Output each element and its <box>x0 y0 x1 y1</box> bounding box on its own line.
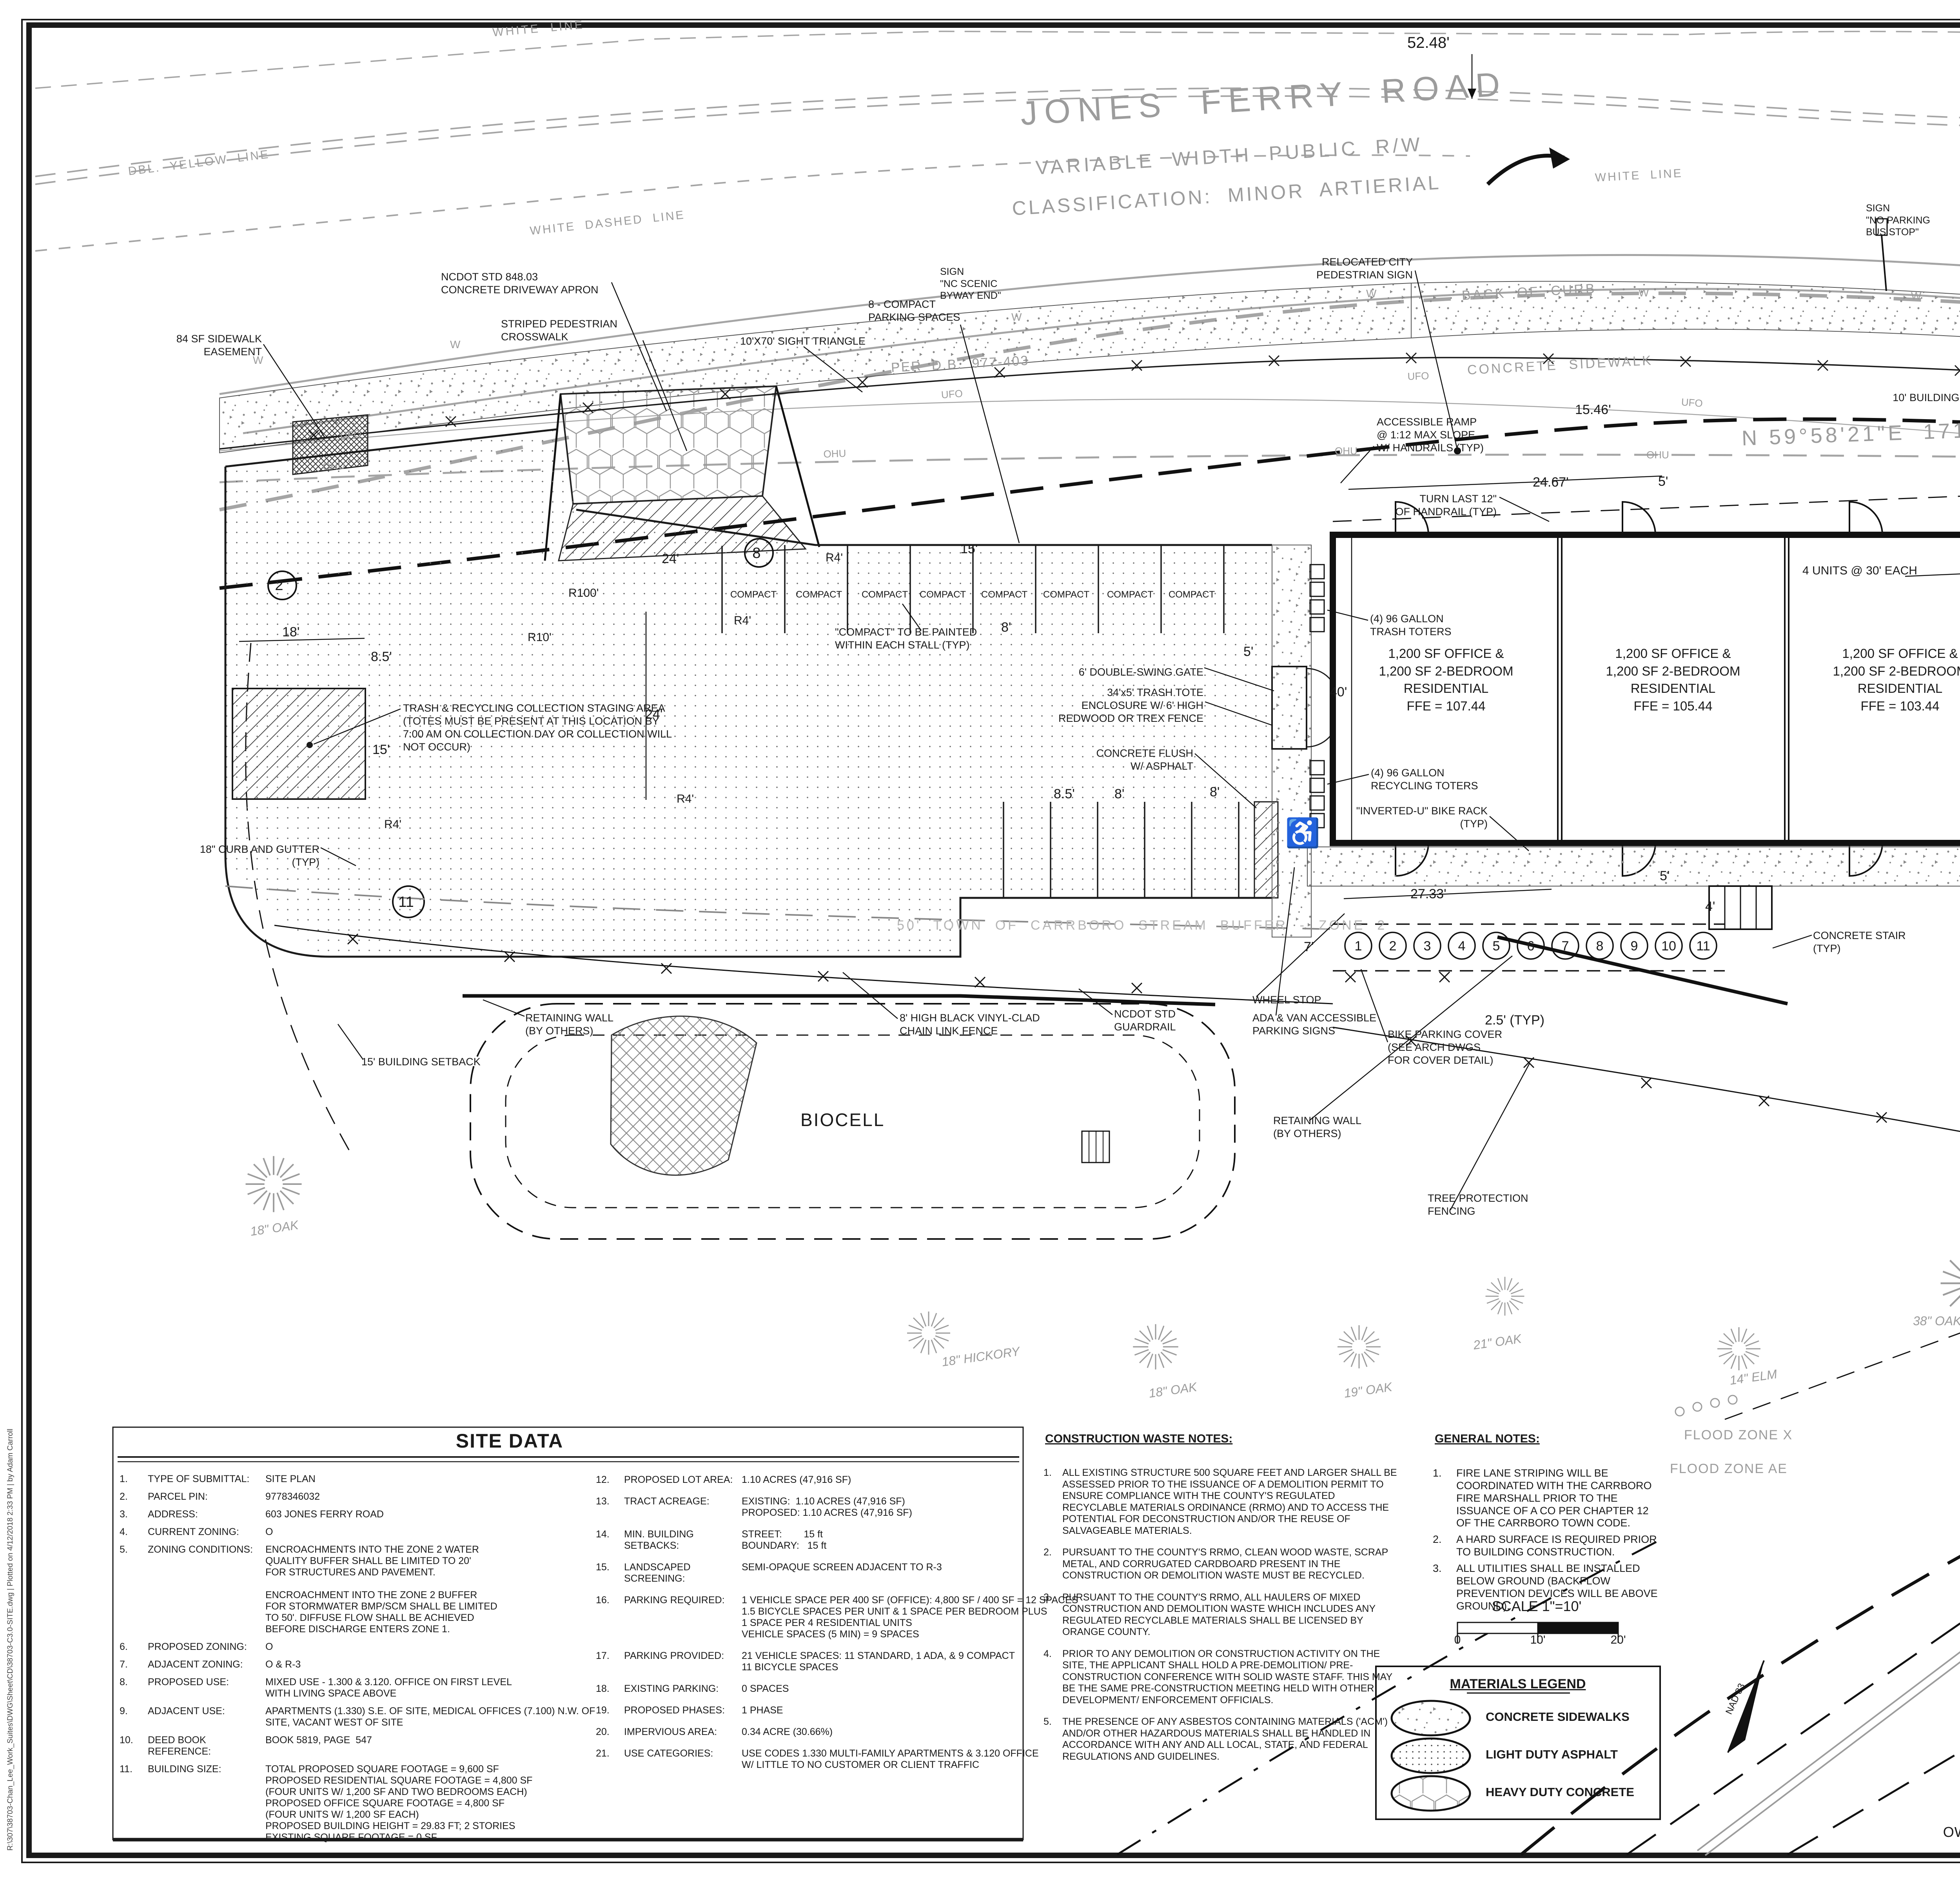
note-number: 2. <box>1044 1547 1062 1582</box>
note-number: 4. <box>1044 1648 1062 1706</box>
bike-10: 10 <box>1661 938 1676 954</box>
compact-1: COMPACT <box>730 589 777 600</box>
note-text: ALL UTILITIES SHALL BE INSTALLED BELOW G… <box>1456 1562 1660 1612</box>
dim-2733: 27.33' <box>1410 886 1446 902</box>
lbl-concrete-stair: CONCRETE STAIR (TYP) <box>1813 929 1906 955</box>
site-data-value: 0.34 ACRE (30.66%) <box>742 1726 1058 1738</box>
bike-4: 4 <box>1458 938 1466 954</box>
site-data-value: 1 PHASE <box>742 1705 1058 1716</box>
site-data-label: PROPOSED LOT AREA: <box>624 1474 742 1486</box>
note-text: ALL EXISTING STRUCTURE 500 SQUARE FEET A… <box>1062 1467 1398 1537</box>
dim-24-aisle: 24' <box>645 707 662 723</box>
gn-title: GENERAL NOTES: <box>1435 1432 1540 1446</box>
w-6: W <box>1911 289 1921 303</box>
lbl-inverted-u: "INVERTED-U" BIKE RACK (TYP) <box>1356 805 1488 830</box>
dim-1546: 15.46' <box>1575 402 1611 418</box>
bike-1: 1 <box>1355 938 1362 954</box>
lbl-recycling-toters: (4) 96 GALLON RECYCLING TOTERS <box>1371 767 1478 792</box>
lbl-biocell: BIOCELL <box>800 1109 885 1131</box>
ufo-3: UFO <box>1407 370 1429 383</box>
7.: 7. ADJACENT ZONING: O & R-3 <box>120 1659 584 1670</box>
site-data-label: LANDSCAPED SCREENING: <box>624 1562 742 1584</box>
site-data-number: 17. <box>596 1650 624 1673</box>
w-3: W <box>1011 311 1022 324</box>
compact-7: COMPACT <box>1107 589 1153 600</box>
5.: 5. THE PRESENCE OF ANY ASBESTOS CONTAINI… <box>1044 1716 1398 1762</box>
dim-7-bike: 7' <box>1304 939 1314 955</box>
site-data-value: 603 JONES FERRY ROAD <box>265 1509 584 1520</box>
lbl-curb-gutter: 18" CURB AND GUTTER (TYP) <box>200 843 319 869</box>
13.: 13. TRACT ACREAGE: EXISTING: 1.10 ACRES … <box>596 1496 1058 1519</box>
ohu-2: OHU <box>823 447 846 461</box>
lbl-chain-link: 8' HIGH BLACK VINYL-CLAD CHAIN LINK FENC… <box>900 1012 1040 1037</box>
lbl-stream-buffer: 50' TOWN OF CARRBORO STREAM BUFFER - ZON… <box>897 917 1387 934</box>
16.: 16. PARKING REQUIRED: 1 VEHICLE SPACE PE… <box>596 1595 1058 1640</box>
17.: 17. PARKING PROVIDED: 21 VEHICLE SPACES:… <box>596 1650 1058 1673</box>
dim-40: 40' <box>1330 684 1347 700</box>
site-data-number: 2. <box>120 1491 148 1502</box>
site-data-right-column: 12. PROPOSED LOT AREA: 1.10 ACRES (47,91… <box>596 1474 1058 1781</box>
sign-scenic-byway: SIGN "NC SCENIC BYWAY END" <box>940 266 1001 302</box>
3.: 3. ADDRESS: 603 JONES FERRY ROAD <box>120 1509 584 1520</box>
dim-18: 18' <box>282 624 299 640</box>
1.: 1. TYPE OF SUBMITTAL: SITE PLAN <box>120 1473 584 1485</box>
unit-2: 1,200 SF OFFICE & 1,200 SF 2-BEDROOM RES… <box>1606 645 1740 715</box>
ml-item-concrete: CONCRETE SIDEWALKS <box>1486 1709 1630 1724</box>
note-number: 2. <box>1433 1533 1456 1559</box>
site-data-label: ZONING CONDITIONS: <box>148 1544 265 1635</box>
r4-b: R4' <box>677 792 694 807</box>
site-data-label: CURRENT ZONING: <box>148 1526 265 1538</box>
site-data-value: MIXED USE - 1.300 & 3.120. OFFICE ON FIR… <box>265 1677 584 1699</box>
site-plan-sheet: JONES FERRY ROADVARIABLE WIDTH PUBLIC R/… <box>0 0 1960 1882</box>
site-data-label: IMPERVIOUS AREA: <box>624 1726 742 1738</box>
construction-waste-notes: 1. ALL EXISTING STRUCTURE 500 SQUARE FEE… <box>1044 1467 1398 1773</box>
site-data-number: 7. <box>120 1659 148 1670</box>
site-data-value: USE CODES 1.330 MULTI-FAMILY APARTMENTS … <box>742 1748 1058 1771</box>
ml-item-heavy: HEAVY DUTY CONCRETE <box>1486 1785 1634 1800</box>
15.: 15. LANDSCAPED SCREENING: SEMI-OPAQUE SC… <box>596 1562 1058 1584</box>
5.: 5. ZONING CONDITIONS: ENCROACHMENTS INTO… <box>120 1544 584 1635</box>
1.: 1. ALL EXISTING STRUCTURE 500 SQUARE FEE… <box>1044 1467 1398 1537</box>
compact-3: COMPACT <box>862 589 908 600</box>
site-data-number: 5. <box>120 1544 148 1635</box>
site-data-value: BOOK 5819, PAGE 547 <box>265 1735 584 1757</box>
site-data-value: 1 VEHICLE SPACE PER 400 SF (OFFICE): 4,8… <box>742 1595 1078 1640</box>
site-data-number: 4. <box>120 1526 148 1538</box>
6.: 6. PROPOSED ZONING: O <box>120 1641 584 1653</box>
compact-8: COMPACT <box>1169 589 1215 600</box>
sign-bus-stop: SIGN "NO PARKING BUS STOP" <box>1866 202 1930 238</box>
note-text: A HARD SURFACE IS REQUIRED PRIOR TO BUIL… <box>1456 1533 1660 1559</box>
site-data-number: 15. <box>596 1562 624 1584</box>
lbl-compact-note: "COMPACT" TO BE PAINTED WITHIN EACH STAL… <box>835 626 977 652</box>
scale-tick-0: 0 <box>1454 1633 1461 1648</box>
w-1: W <box>253 354 263 367</box>
9.: 9. ADJACENT USE: APARTMENTS (1.330) S.E.… <box>120 1706 584 1728</box>
dim-85-b: 8.5' <box>1054 786 1075 802</box>
r10: R10' <box>528 630 552 645</box>
note-number: 3. <box>1044 1592 1062 1638</box>
lbl-10ft-setback: 10' BUILDING SETBACK <box>1893 391 1960 404</box>
ohu-3: OHU <box>1335 445 1357 458</box>
lbl-accessible-ramp: ACCESSIBLE RAMP @ 1:12 MAX SLOPE W/ HAND… <box>1377 416 1484 454</box>
lbl-retaining-wall-west: RETAINING WALL (BY OTHERS) <box>525 1012 613 1037</box>
scale-tick-10: 10' <box>1530 1633 1545 1648</box>
lbl-turn-handrail: TURN LAST 12" OF HANDRAIL (TYP) <box>1395 492 1497 518</box>
dim-8-c: 8' <box>1210 784 1220 800</box>
ufo-2: UFO <box>941 387 963 401</box>
site-data-value: SITE PLAN <box>265 1473 584 1485</box>
site-data-label: USE CATEGORIES: <box>624 1748 742 1771</box>
site-data-value: 1.10 ACRES (47,916 SF) <box>742 1474 1058 1486</box>
note-text: PRIOR TO ANY DEMOLITION OR CONSTRUCTION … <box>1062 1648 1398 1706</box>
site-data-value: 0 SPACES <box>742 1683 1058 1695</box>
site-data-number: 6. <box>120 1641 148 1653</box>
site-data-number: 19. <box>596 1705 624 1716</box>
dim-25-typ: 2.5' (TYP) <box>1485 1012 1544 1028</box>
site-data-number: 13. <box>596 1496 624 1519</box>
r4-a: R4' <box>734 614 751 628</box>
tree-38oak: 38" OAK <box>1913 1313 1960 1329</box>
lbl-trash-staging: TRASH & RECYCLING COLLECTION STAGING ARE… <box>403 702 672 754</box>
dim-8-stall: 8' <box>1001 619 1011 636</box>
site-data-value: TOTAL PROPOSED SQUARE FOOTAGE = 9,600 SF… <box>265 1764 584 1843</box>
lbl-15ft-setback-west: 15' BUILDING SETBACK <box>361 1055 481 1068</box>
ufo-4: UFO <box>1681 396 1703 410</box>
lbl-gate: 6' DOUBLE-SWING GATE <box>1079 666 1203 679</box>
cwn-title: CONSTRUCTION WASTE NOTES: <box>1045 1432 1232 1446</box>
dim-2467: 24.67' <box>1533 474 1569 490</box>
r4-c: R4' <box>384 817 401 832</box>
site-data-title: SITE DATA <box>456 1429 563 1453</box>
dim-15-stall: 15' <box>960 541 978 557</box>
ohu-1: OHU <box>322 460 345 473</box>
lbl-sidewalk-easement: 84 SF SIDEWALK EASEMENT <box>176 332 262 358</box>
bike-6: 6 <box>1527 938 1535 954</box>
note-number: 1. <box>1044 1467 1062 1537</box>
18.: 18. EXISTING PARKING: 0 SPACES <box>596 1683 1058 1695</box>
site-data-value: STREET: 15 ft BOUNDARY: 15 ft <box>742 1529 1058 1551</box>
unit-1: 1,200 SF OFFICE & 1,200 SF 2-BEDROOM RES… <box>1379 645 1514 715</box>
site-data-number: 3. <box>120 1509 148 1520</box>
ml-item-asphalt: LIGHT DUTY ASPHALT <box>1486 1747 1618 1762</box>
site-data-label: ADJACENT ZONING: <box>148 1659 265 1670</box>
3.: 3. ALL UTILITIES SHALL BE INSTALLED BELO… <box>1433 1562 1660 1612</box>
site-data-number: 10. <box>120 1735 148 1757</box>
site-data-number: 1. <box>120 1473 148 1485</box>
site-data-number: 12. <box>596 1474 624 1486</box>
site-data-label: PROPOSED PHASES: <box>624 1705 742 1716</box>
site-data-label: DEED BOOK REFERENCE: <box>148 1735 265 1757</box>
site-data-value: EXISTING: 1.10 ACRES (47,916 SF) PROPOSE… <box>742 1496 1058 1519</box>
circle-8: 8 <box>752 544 760 562</box>
ohu-4: OHU <box>1646 449 1669 461</box>
site-data-number: 21. <box>596 1748 624 1771</box>
2.: 2. PURSUANT TO THE COUNTY'S RRMO, CLEAN … <box>1044 1547 1398 1582</box>
site-data-value: SEMI-OPAQUE SCREEN ADJACENT TO R-3 <box>742 1562 1058 1584</box>
site-data-value: 21 VEHICLE SPACES: 11 STANDARD, 1 ADA, &… <box>742 1650 1058 1673</box>
site-data-value: O & R-3 <box>265 1659 584 1670</box>
bike-7: 7 <box>1562 938 1569 954</box>
bike-8: 8 <box>1596 938 1604 954</box>
file-path-note: R:\307\38703-Chan_Lee_Work_Suites\DWG\Sh… <box>6 949 15 1851</box>
dim-15-stage: 15' <box>372 742 390 758</box>
lbl-bike-cover: BIKE PARKING COVER (SEE ARCH DWGS FOR CO… <box>1388 1028 1502 1067</box>
note-text: THE PRESENCE OF ANY ASBESTOS CONTAINING … <box>1062 1716 1398 1762</box>
2.: 2. A HARD SURFACE IS REQUIRED PRIOR TO B… <box>1433 1533 1660 1559</box>
dim-5-door: 5' <box>1658 474 1668 490</box>
bike-3: 3 <box>1424 938 1431 954</box>
1.: 1. FIRE LANE STRIPING WILL BE COORDINATE… <box>1433 1467 1660 1530</box>
site-data-value: ENCROACHMENTS INTO THE ZONE 2 WATER QUAL… <box>265 1544 584 1635</box>
general-notes: 1. FIRE LANE STRIPING WILL BE COORDINATE… <box>1433 1467 1660 1616</box>
site-data-value: O <box>265 1526 584 1538</box>
bike-11: 11 <box>1696 938 1710 954</box>
ada-symbol: ♿ <box>1285 816 1320 851</box>
note-number: 1. <box>1433 1467 1456 1530</box>
site-data-label: TRACT ACREAGE: <box>624 1496 742 1519</box>
note-text: PURSUANT TO THE COUNTY'S RRMO, ALL HAULE… <box>1062 1592 1398 1638</box>
4.: 4. CURRENT ZONING: O <box>120 1526 584 1538</box>
lbl-trash-toters: (4) 96 GALLON TRASH TOTERS <box>1370 612 1452 638</box>
14.: 14. MIN. BUILDING SETBACKS: STREET: 15 f… <box>596 1529 1058 1551</box>
ml-title: MATERIALS LEGEND <box>1450 1676 1586 1692</box>
bike-9: 9 <box>1631 938 1638 954</box>
lbl-guardrail: NCDOT STD GUARDRAIL <box>1114 1008 1176 1034</box>
site-data-label: EXISTING PARKING: <box>624 1683 742 1695</box>
lbl-tote-enclosure: 34'x5' TRASH TOTE ENCLOSURE W/ 6' HIGH R… <box>1058 686 1203 725</box>
compact-6: COMPACT <box>1043 589 1089 600</box>
site-data-label: ADJACENT USE: <box>148 1706 265 1728</box>
dim-85-stage: 8.5' <box>371 649 392 665</box>
bike-2: 2 <box>1389 938 1397 954</box>
compact-4: COMPACT <box>920 589 966 600</box>
site-data-number: 11. <box>120 1764 148 1843</box>
8.: 8. PROPOSED USE: MIXED USE - 1.300 & 3.1… <box>120 1677 584 1699</box>
2.: 2. PARCEL PIN: 9778346032 <box>120 1491 584 1502</box>
site-data-value: O <box>265 1641 584 1653</box>
site-data-label: PARKING PROVIDED: <box>624 1650 742 1673</box>
10.: 10. DEED BOOK REFERENCE: BOOK 5819, PAGE… <box>120 1735 584 1757</box>
owner-information: OWNER INFORMATION: FRANCIS CHAN; 101 HAR… <box>1943 1824 1960 1840</box>
dim-5-stair: 5' <box>1660 868 1670 884</box>
site-data-label: PROPOSED ZONING: <box>148 1641 265 1653</box>
ufo-1: UFO <box>339 427 362 442</box>
11.: 11. BUILDING SIZE: TOTAL PROPOSED SQUARE… <box>120 1764 584 1843</box>
w-2: W <box>450 338 460 351</box>
site-data-number: 9. <box>120 1706 148 1728</box>
dim-8-b: 8' <box>1114 786 1124 802</box>
lbl-striped-crosswalk: STRIPED PEDESTRIAN CROSSWALK <box>501 318 617 343</box>
site-data-left-column: 1. TYPE OF SUBMITTAL: SITE PLAN 2. PARCE… <box>120 1473 584 1849</box>
site-data-label: ADDRESS: <box>148 1509 265 1520</box>
lbl-8-compact: 8 - COMPACT PARKING SPACES <box>868 298 960 324</box>
12.: 12. PROPOSED LOT AREA: 1.10 ACRES (47,91… <box>596 1474 1058 1486</box>
lbl-4units: 4 UNITS @ 30' EACH <box>1802 564 1917 578</box>
compact-2: COMPACT <box>796 589 842 600</box>
lbl-concrete-flush: CONCRETE FLUSH W/ ASPHALT <box>1096 747 1193 773</box>
circle-11: 11 <box>398 893 414 911</box>
site-data-number: 14. <box>596 1529 624 1551</box>
r100: R100' <box>568 586 599 601</box>
lbl-flood-ae: FLOOD ZONE AE <box>1670 1461 1788 1477</box>
21.: 21. USE CATEGORIES: USE CODES 1.330 MULT… <box>596 1748 1058 1771</box>
lbl-ada-signs: ADA & VAN ACCESSIBLE PARKING SIGNS <box>1252 1012 1376 1037</box>
compact-5: COMPACT <box>981 589 1027 600</box>
site-data-number: 8. <box>120 1677 148 1699</box>
site-data-value: APARTMENTS (1.330) S.E. OF SITE, MEDICAL… <box>265 1706 595 1728</box>
site-data-number: 16. <box>596 1595 624 1640</box>
lbl-wheel-stop: WHEEL STOP <box>1252 994 1321 1006</box>
w-4: W <box>1366 287 1376 300</box>
site-data-label: TYPE OF SUBMITTAL: <box>148 1473 265 1485</box>
unit-3: 1,200 SF OFFICE & 1,200 SF 2-BEDROOM RES… <box>1833 645 1960 715</box>
note-text: FIRE LANE STRIPING WILL BE COORDINATED W… <box>1456 1467 1660 1530</box>
dim-5248: 52.48' <box>1407 33 1450 53</box>
site-data-label: BUILDING SIZE: <box>148 1764 265 1843</box>
dim-5-gate: 5' <box>1243 644 1253 660</box>
scale-tick-20: 20' <box>1610 1633 1626 1648</box>
w-5: W <box>1639 286 1649 300</box>
site-data-value: 9778346032 <box>265 1491 584 1502</box>
site-data-label: MIN. BUILDING SETBACKS: <box>624 1529 742 1551</box>
site-data-label: PARCEL PIN: <box>148 1491 265 1502</box>
lbl-tree-protection: TREE PROTECTION FENCING <box>1428 1192 1528 1218</box>
dim-4-walk: 4' <box>1705 899 1715 915</box>
note-number: 5. <box>1044 1716 1062 1762</box>
site-data-label: PARKING REQUIRED: <box>624 1595 742 1640</box>
lbl-relocated-ped-sign: RELOCATED CITY PEDESTRIAN SIGN <box>1316 256 1413 282</box>
lbl-sight-triangle: 10'X70' SIGHT TRIANGLE <box>740 335 866 348</box>
bike-5: 5 <box>1493 938 1500 954</box>
r4-d: R4' <box>826 551 843 565</box>
site-data-label: PROPOSED USE: <box>148 1677 265 1699</box>
circle-2: 2 <box>275 576 283 594</box>
lbl-flood-x: FLOOD ZONE X <box>1684 1427 1793 1443</box>
lbl-retaining-wall-east: RETAINING WALL (BY OTHERS) <box>1273 1114 1361 1140</box>
note-text: PURSUANT TO THE COUNTY'S RRMO, CLEAN WOO… <box>1062 1547 1398 1582</box>
site-data-number: 18. <box>596 1683 624 1695</box>
20.: 20. IMPERVIOUS AREA: 0.34 ACRE (30.66%) <box>596 1726 1058 1738</box>
3.: 3. PURSUANT TO THE COUNTY'S RRMO, ALL HA… <box>1044 1592 1398 1638</box>
19.: 19. PROPOSED PHASES: 1 PHASE <box>596 1705 1058 1716</box>
4.: 4. PRIOR TO ANY DEMOLITION OR CONSTRUCTI… <box>1044 1648 1398 1706</box>
dim-24-entry: 24' <box>662 551 679 567</box>
note-number: 3. <box>1433 1562 1456 1612</box>
site-data-number: 20. <box>596 1726 624 1738</box>
lbl-ncdot-apron: NCDOT STD 848.03 CONCRETE DRIVEWAY APRON <box>441 271 599 296</box>
